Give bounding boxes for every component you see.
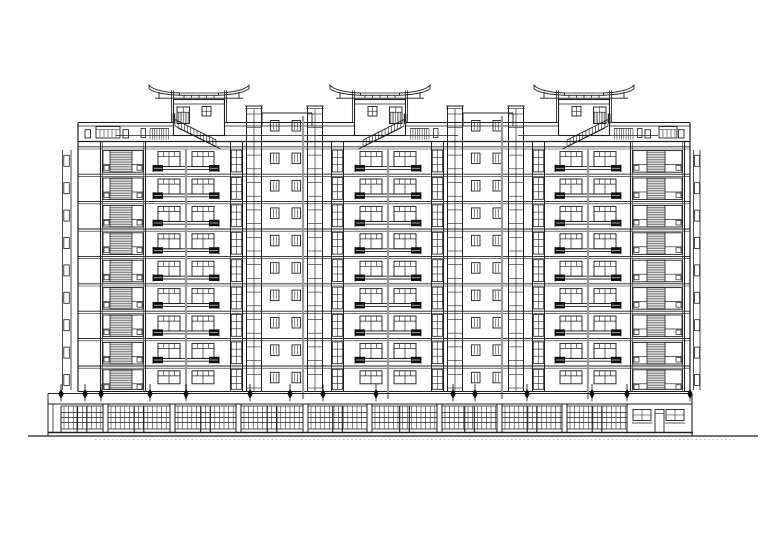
pagoda-pavilion-3 [534, 85, 642, 149]
pagoda-pavilion-2 [330, 85, 438, 149]
storefront-podium [48, 404, 693, 433]
drawing-sheet [0, 0, 780, 551]
building-elevation-drawing [0, 0, 780, 551]
ground-line [28, 436, 758, 439]
pagoda-pavilion-1 [141, 85, 249, 149]
facade-shell [78, 123, 690, 392]
